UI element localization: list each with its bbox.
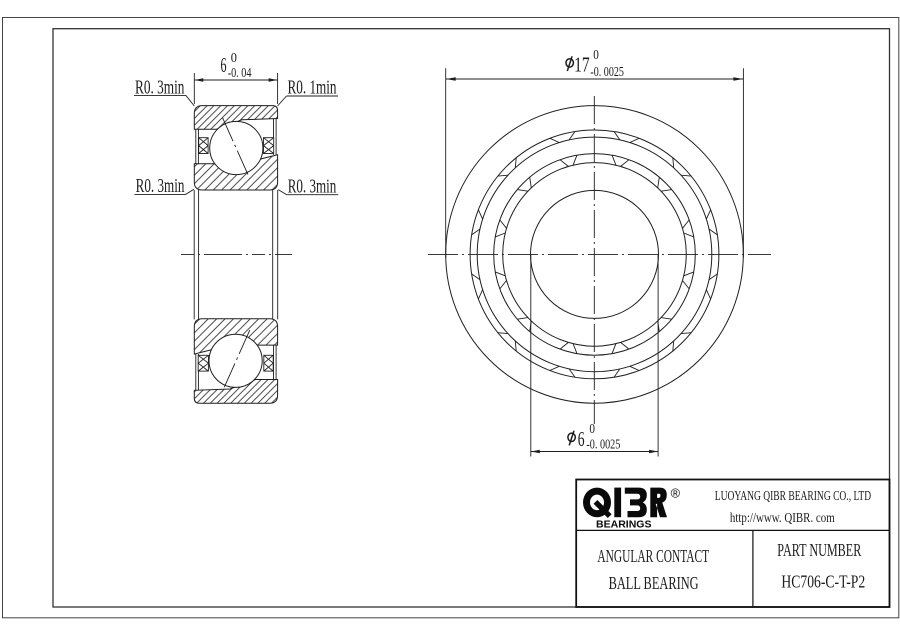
svg-text:BEARINGS: BEARINGS bbox=[596, 519, 652, 530]
svg-text:17: 17 bbox=[574, 55, 590, 77]
svg-text:-0. 04: -0. 04 bbox=[228, 65, 252, 80]
svg-text:HC706-C-T-P2: HC706-C-T-P2 bbox=[781, 572, 865, 592]
svg-text:ANGULAR CONTACT: ANGULAR CONTACT bbox=[597, 546, 709, 566]
svg-text:BALL BEARING: BALL BEARING bbox=[609, 573, 699, 593]
svg-text:®: ® bbox=[671, 485, 681, 500]
svg-text:0: 0 bbox=[589, 421, 595, 436]
svg-text:-0. 0025: -0. 0025 bbox=[590, 64, 624, 79]
svg-text:PART NUMBER: PART NUMBER bbox=[777, 540, 861, 560]
svg-text:R0. 3min: R0. 3min bbox=[288, 175, 337, 197]
svg-text:R0. 3min: R0. 3min bbox=[135, 76, 184, 98]
svg-text:0: 0 bbox=[593, 47, 599, 62]
svg-text:R0. 1min: R0. 1min bbox=[288, 77, 337, 99]
svg-text:6: 6 bbox=[578, 429, 585, 451]
svg-text:R0. 3min: R0. 3min bbox=[136, 175, 185, 197]
svg-text:LUOYANG QIBR BEARING CO., LTD: LUOYANG QIBR BEARING CO., LTD bbox=[715, 488, 871, 503]
svg-text:-0. 0025: -0. 0025 bbox=[586, 436, 620, 451]
svg-text:0: 0 bbox=[231, 50, 237, 65]
svg-text:http://www. QIBR. com: http://www. QIBR. com bbox=[730, 511, 835, 526]
svg-text:6: 6 bbox=[221, 55, 227, 77]
